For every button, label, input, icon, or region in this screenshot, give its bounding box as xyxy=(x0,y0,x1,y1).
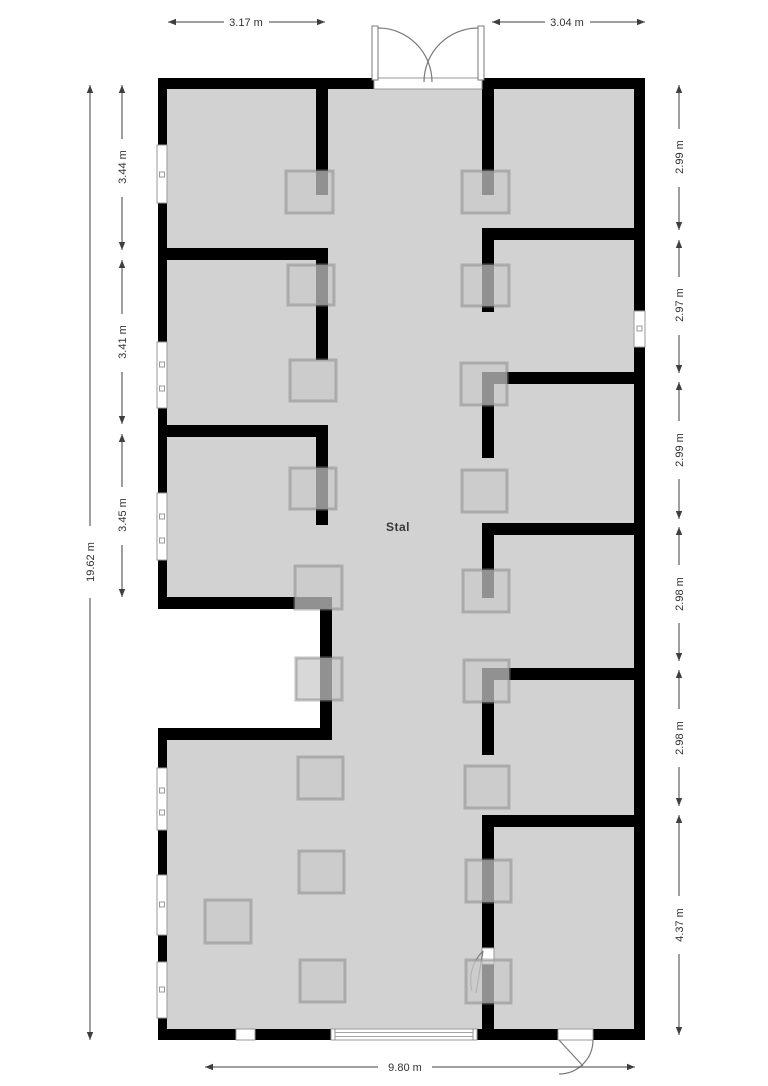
dimension-left-total: 19.62 m xyxy=(83,85,97,1040)
door-swing-arc xyxy=(424,28,478,82)
feeding-trough xyxy=(205,900,251,943)
feeding-trough xyxy=(286,171,333,213)
dimension-label: 9.80 m xyxy=(388,1062,422,1074)
feeding-trough xyxy=(463,570,509,612)
door-opening xyxy=(558,1029,593,1040)
notch-wall-bottom xyxy=(158,728,332,740)
feeding-trough xyxy=(288,265,334,305)
arrow-down-icon xyxy=(676,653,682,661)
arrow-up-icon xyxy=(119,260,125,268)
vent xyxy=(236,1029,255,1040)
room-label: Stal xyxy=(386,520,410,534)
dimension-right-section-4: 2.98 m xyxy=(672,527,686,661)
dimension-label: 3.04 m xyxy=(550,17,584,29)
arrow-down-icon xyxy=(119,589,125,597)
feeding-trough xyxy=(300,960,345,1002)
wall-right xyxy=(634,78,645,1040)
arrow-down-icon xyxy=(676,365,682,373)
arrow-down-icon xyxy=(676,222,682,230)
dimension-top-left: 3.17 m xyxy=(168,15,325,29)
door-leaf xyxy=(478,26,484,80)
dimension-right-section-3: 2.99 m xyxy=(672,382,686,519)
door-swing-arc xyxy=(378,28,432,82)
arrow-left-icon xyxy=(492,19,500,25)
floor-area xyxy=(158,78,645,1040)
feeding-trough xyxy=(465,766,509,808)
dimension-top-right: 3.04 m xyxy=(492,15,645,29)
arrow-up-icon xyxy=(676,240,682,248)
feeding-trough xyxy=(295,566,342,609)
wall-left-segment xyxy=(158,203,167,342)
arrow-right-icon xyxy=(637,19,645,25)
room-wall-top xyxy=(482,815,634,827)
window xyxy=(157,768,167,830)
dimension-left-section-1: 3.44 m xyxy=(115,85,129,250)
dimension-label: 2.98 m xyxy=(674,577,686,611)
stall-wall xyxy=(166,248,328,260)
arrow-up-icon xyxy=(676,85,682,93)
dimension-right-section-1: 2.99 m xyxy=(672,85,686,230)
arrow-down-icon xyxy=(676,511,682,519)
feeding-trough xyxy=(298,757,343,799)
arrow-down-icon xyxy=(676,798,682,806)
dimension-label: 2.99 m xyxy=(674,433,686,467)
arrow-left-icon xyxy=(168,19,176,25)
arrow-right-icon xyxy=(627,1064,635,1070)
dimension-label: 3.17 m xyxy=(229,17,263,29)
dimension-label: 2.98 m xyxy=(674,721,686,755)
feeding-trough xyxy=(290,468,336,509)
dimension-label: 3.41 m xyxy=(117,325,129,359)
arrow-up-icon xyxy=(676,670,682,678)
wall-left-segment xyxy=(158,408,167,493)
dimension-left-section-2: 3.41 m xyxy=(115,260,129,424)
dimension-label: 19.62 m xyxy=(85,542,97,582)
dimension-left-section-3: 3.45 m xyxy=(115,434,129,597)
arrow-up-icon xyxy=(676,815,682,823)
arrow-up-icon xyxy=(119,85,125,93)
wall-left-segment xyxy=(158,78,167,145)
arrow-up-icon xyxy=(87,85,93,93)
feeding-trough xyxy=(466,860,511,902)
stall-wall xyxy=(482,228,634,240)
window xyxy=(157,875,167,935)
dimension-label: 2.97 m xyxy=(674,288,686,322)
feeding-trough xyxy=(462,171,509,213)
wall-left-segment xyxy=(158,830,167,875)
arrow-left-icon xyxy=(205,1064,213,1070)
dimension-right-section-6: 4.37 m xyxy=(672,815,686,1035)
arrow-down-icon xyxy=(119,242,125,250)
door-leaf-line xyxy=(559,1040,583,1066)
feeding-trough xyxy=(462,470,507,512)
arrow-down-icon xyxy=(676,1027,682,1035)
feeding-trough xyxy=(296,658,342,700)
floorplan-drawing: Stal 3.17 m 3.04 m 19.62 m 3.44 m 3.4 xyxy=(0,0,768,1086)
dimension-label: 4.37 m xyxy=(674,908,686,942)
feeding-trough xyxy=(466,960,511,1003)
dimension-right-section-5: 2.98 m xyxy=(672,670,686,806)
arrow-down-icon xyxy=(87,1032,93,1040)
window xyxy=(157,962,167,1018)
dimension-label: 3.45 m xyxy=(117,498,129,532)
feeding-trough xyxy=(464,660,509,702)
double-door xyxy=(372,26,484,89)
feeding-trough xyxy=(299,851,344,893)
arrow-right-icon xyxy=(317,19,325,25)
arrow-up-icon xyxy=(676,527,682,535)
window xyxy=(634,311,645,347)
floorplan-canvas: Stal 3.17 m 3.04 m 19.62 m 3.44 m 3.4 xyxy=(0,0,768,1086)
arrow-up-icon xyxy=(676,382,682,390)
door-leaf xyxy=(372,26,378,80)
window xyxy=(157,145,167,203)
door-threshold xyxy=(374,78,482,89)
arrow-down-icon xyxy=(119,416,125,424)
wall-left-segment xyxy=(158,935,167,962)
wall-left-segment xyxy=(158,1018,167,1040)
stall-wall xyxy=(166,425,328,437)
feeding-troughs-right xyxy=(461,171,511,1003)
feeding-trough xyxy=(461,363,507,405)
dimension-label: 2.99 m xyxy=(674,140,686,174)
arrow-up-icon xyxy=(119,434,125,442)
window xyxy=(157,493,167,560)
window xyxy=(157,342,167,408)
feeding-trough xyxy=(462,265,509,306)
feeding-trough xyxy=(290,360,336,401)
stall-wall xyxy=(482,523,634,535)
window xyxy=(331,1029,477,1040)
dimension-right-section-2: 2.97 m xyxy=(672,240,686,373)
dimension-label: 3.44 m xyxy=(117,150,129,184)
